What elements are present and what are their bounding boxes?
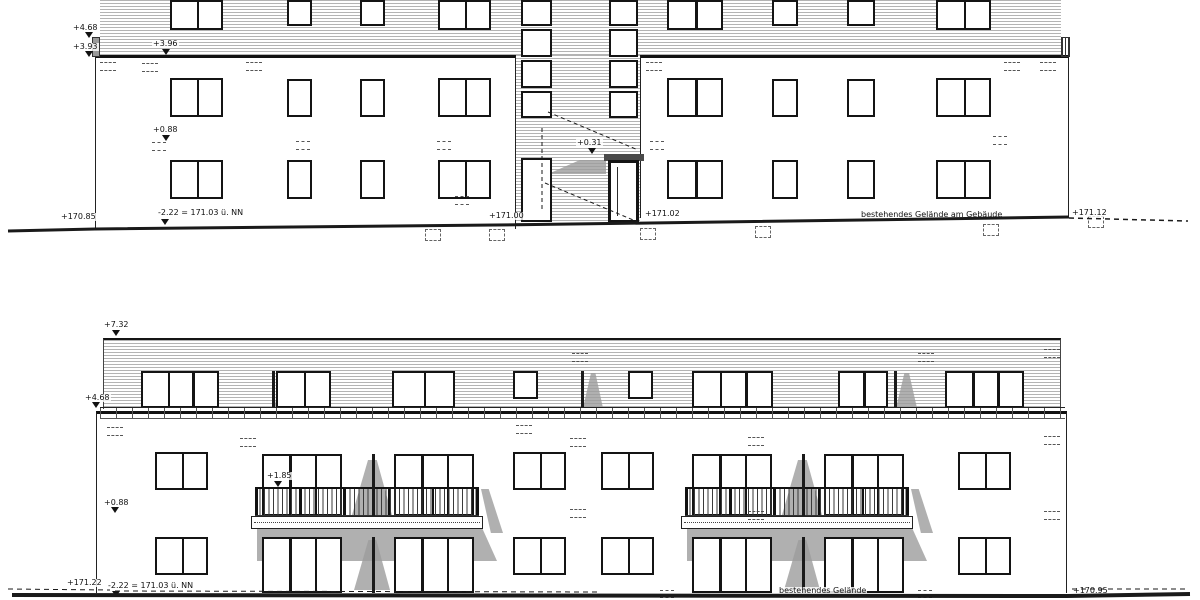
survey-mark xyxy=(993,136,1007,145)
window-mullion xyxy=(182,539,185,573)
window-mullion xyxy=(745,373,748,406)
window-mullion xyxy=(628,539,631,573)
window-mullion xyxy=(877,539,880,591)
window xyxy=(601,452,654,490)
glass-door xyxy=(945,371,1024,408)
level-label: +7.32 xyxy=(103,321,130,329)
privacy-partition xyxy=(802,454,805,516)
window-mullion xyxy=(985,454,988,488)
glass-door xyxy=(692,537,772,593)
window-mullion xyxy=(628,454,631,488)
window xyxy=(513,537,566,575)
railing-end xyxy=(1061,37,1070,57)
balcony-railing xyxy=(255,487,479,516)
window xyxy=(287,160,312,199)
window-mullion xyxy=(985,539,988,573)
level-label: +4.68 xyxy=(84,394,111,402)
railing-post xyxy=(476,489,479,515)
level-label: +170.95 xyxy=(1072,587,1109,595)
level-label: +3.96 xyxy=(152,40,179,48)
window xyxy=(438,0,491,30)
entrance-door xyxy=(608,160,639,223)
window-mullion xyxy=(964,162,967,197)
glass-door xyxy=(692,371,773,408)
railing-post xyxy=(432,489,435,515)
window-mullion xyxy=(997,373,1000,406)
railing-post xyxy=(818,489,821,515)
level-marker-icon xyxy=(162,135,170,141)
level-marker-icon xyxy=(112,591,120,597)
window-mullion xyxy=(695,162,698,197)
survey-mark xyxy=(1044,511,1060,520)
survey-mark xyxy=(152,142,166,151)
window xyxy=(513,371,538,399)
survey-mark xyxy=(572,353,588,362)
railing-post xyxy=(906,489,909,515)
level-label: +3.93 xyxy=(72,43,99,51)
railing-post xyxy=(343,489,346,515)
window xyxy=(521,29,552,57)
level-marker-icon xyxy=(274,481,282,487)
level-marker-icon xyxy=(588,148,596,154)
window xyxy=(847,0,875,26)
level-label: -2.22 = 171.03 ü. NN xyxy=(107,582,194,590)
foundation-mark xyxy=(1088,216,1104,228)
window-mullion xyxy=(465,2,468,28)
window-mullion xyxy=(695,80,698,115)
window-mullion xyxy=(421,539,424,591)
window xyxy=(847,160,875,199)
survey-mark xyxy=(142,63,158,72)
window xyxy=(609,0,638,26)
window xyxy=(513,452,566,490)
window-mullion xyxy=(192,373,195,406)
survey-mark xyxy=(240,438,256,447)
window-mullion xyxy=(197,162,200,197)
survey-mark xyxy=(748,437,764,446)
window xyxy=(667,0,723,30)
level-label: +171.00 xyxy=(488,212,525,220)
level-label: +0.88 xyxy=(152,126,179,134)
foundation-mark xyxy=(425,229,441,241)
level-marker-icon xyxy=(112,330,120,336)
window xyxy=(667,78,723,117)
survey-mark xyxy=(570,438,586,447)
level-marker-icon xyxy=(85,51,93,57)
survey-mark xyxy=(748,511,764,520)
window xyxy=(521,158,552,222)
window xyxy=(958,537,1011,575)
window-mullion xyxy=(465,162,468,197)
window xyxy=(601,537,654,575)
survey-mark xyxy=(455,196,469,205)
window xyxy=(170,78,223,117)
window-mullion xyxy=(540,454,543,488)
window xyxy=(438,160,491,199)
level-label: +171.02 xyxy=(644,210,681,218)
foundation-mark xyxy=(983,224,999,236)
balcony-slab xyxy=(251,516,483,529)
privacy-partition xyxy=(581,371,584,408)
window-mullion xyxy=(197,80,200,115)
window-mullion xyxy=(540,539,543,573)
level-label: +4.68 xyxy=(72,24,99,32)
foundation-mark xyxy=(489,229,505,241)
survey-mark xyxy=(650,141,664,150)
window-mullion xyxy=(168,373,171,406)
glass-door xyxy=(262,537,342,593)
level-label: +0.31 xyxy=(576,139,603,147)
window xyxy=(772,160,798,199)
window-mullion xyxy=(465,80,468,115)
level-marker-icon xyxy=(111,507,119,513)
window-mullion xyxy=(964,80,967,115)
railing-post xyxy=(862,489,865,515)
railing-post xyxy=(388,489,391,515)
architectural-elevation-drawing: +4.68+3.93+3.96+0.88-2.22 = 171.03 ü. NN… xyxy=(0,0,1200,600)
window xyxy=(170,0,223,30)
window-mullion xyxy=(304,373,307,406)
window-mullion xyxy=(447,539,450,591)
window-mullion xyxy=(972,373,975,406)
window xyxy=(772,79,798,117)
glass-door xyxy=(824,537,904,593)
privacy-partition xyxy=(372,537,375,593)
window xyxy=(772,0,798,26)
level-marker-icon xyxy=(162,49,170,55)
window-mullion xyxy=(745,539,748,591)
window xyxy=(521,91,552,118)
privacy-partition xyxy=(894,371,897,408)
survey-mark xyxy=(107,427,123,436)
window-mullion xyxy=(720,373,723,406)
window xyxy=(521,60,552,88)
survey-mark xyxy=(646,62,662,71)
glass-door xyxy=(838,371,888,408)
level-label: +170.85 xyxy=(60,213,97,221)
railing-post xyxy=(255,489,258,515)
window-mullion xyxy=(424,373,427,406)
survey-mark xyxy=(516,425,532,434)
railing-post xyxy=(299,489,302,515)
window xyxy=(958,452,1011,490)
level-marker-icon xyxy=(85,32,93,38)
window xyxy=(936,78,991,117)
level-label: +1.85 xyxy=(266,472,293,480)
window-mullion xyxy=(719,539,722,591)
ground-line-bottom-solid xyxy=(12,594,1190,596)
survey-mark xyxy=(100,62,116,71)
privacy-partition xyxy=(802,537,805,593)
foundation-mark xyxy=(640,228,656,240)
glass-door xyxy=(141,371,219,408)
balcony-slab xyxy=(681,516,913,529)
window xyxy=(667,160,723,199)
level-marker-icon xyxy=(92,402,100,408)
level-label: bestehendes Gelände am Gebäude xyxy=(860,211,1003,219)
railing-post xyxy=(685,489,688,515)
window-mullion xyxy=(851,539,854,591)
privacy-partition xyxy=(372,454,375,516)
survey-mark xyxy=(1040,62,1056,71)
survey-mark xyxy=(918,590,932,598)
window xyxy=(360,160,385,199)
window xyxy=(438,78,491,117)
privacy-partition xyxy=(272,371,275,408)
window-mullion xyxy=(182,454,185,488)
survey-mark xyxy=(570,509,586,518)
ground-line-bottom-dash-left xyxy=(8,589,110,590)
window xyxy=(287,0,312,26)
window xyxy=(521,0,552,26)
survey-mark xyxy=(1044,436,1060,445)
window-mullion xyxy=(315,539,318,591)
glass-door xyxy=(276,371,331,408)
survey-mark xyxy=(1004,62,1020,71)
level-label: +171.22 xyxy=(66,579,103,587)
window xyxy=(155,537,208,575)
foundation-mark xyxy=(755,226,771,238)
level-label: +171.12 xyxy=(1071,209,1108,217)
window-mullion xyxy=(964,2,967,28)
ground-line-top-dashed xyxy=(1069,218,1188,221)
cladding-hatch xyxy=(100,0,1061,57)
window-mullion xyxy=(289,539,292,591)
window xyxy=(287,79,312,117)
window-mullion xyxy=(863,373,866,406)
window xyxy=(170,160,223,199)
survey-mark xyxy=(437,141,451,150)
level-label: bestehendes Gelände xyxy=(778,587,867,595)
survey-mark xyxy=(1044,349,1060,358)
level-label: +0.88 xyxy=(103,499,130,507)
survey-mark xyxy=(660,590,674,598)
window xyxy=(155,452,208,490)
window xyxy=(628,371,653,399)
window xyxy=(609,91,638,118)
window-mullion xyxy=(197,2,200,28)
terrace-railing xyxy=(100,407,1065,419)
window xyxy=(360,79,385,117)
railing-post xyxy=(773,489,776,515)
glass-door xyxy=(394,537,474,593)
window xyxy=(360,0,385,26)
survey-mark xyxy=(918,353,934,362)
railing-post xyxy=(729,489,732,515)
level-marker-icon xyxy=(161,219,169,225)
survey-mark xyxy=(246,62,262,71)
survey-mark xyxy=(296,141,310,150)
window xyxy=(936,0,991,30)
window-mullion xyxy=(695,2,698,28)
window xyxy=(609,60,638,88)
window xyxy=(936,160,991,199)
glass-door xyxy=(392,371,455,408)
balcony-railing xyxy=(685,487,909,516)
window xyxy=(847,79,875,117)
level-label: -2.22 = 171.03 ü. NN xyxy=(157,209,244,217)
window xyxy=(609,29,638,57)
